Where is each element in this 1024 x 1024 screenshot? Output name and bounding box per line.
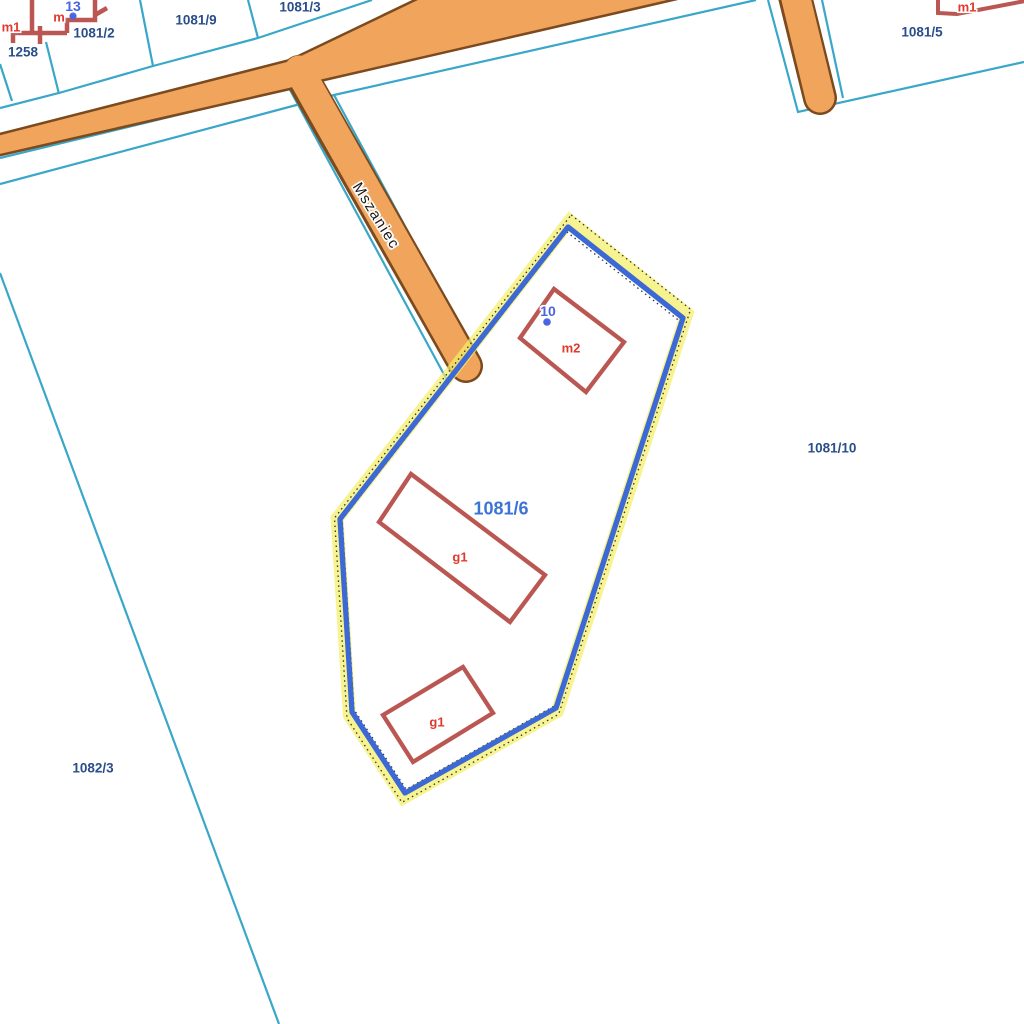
parcel-label-1258: 1258 [8,45,38,60]
parcel-label-1081-6-selected[interactable]: 1081/6 [473,499,528,520]
map-canvas[interactable]: m1 13 m 1258 1081/2 1081/9 1081/3 1081/5… [0,0,1024,1024]
building-label-m1-left: m1 [2,20,21,35]
building-m1-right-outline[interactable] [938,0,1024,14]
address-label-10: 10 [540,303,556,319]
building-label-m1-right: m1 [958,0,977,15]
building-label-m-left: m [53,10,65,25]
parcel-label-1081-2: 1081/2 [73,26,114,41]
building-label-g1-north: g1 [452,550,467,565]
address-label-13: 13 [65,0,81,14]
boundary-1258-1081-2 [46,42,59,94]
parcel-label-1081-10: 1081/10 [808,441,857,456]
parcel-label-1082-3: 1082/3 [72,761,113,776]
building-g1-north-outline[interactable] [379,474,545,622]
address-point-dot-10[interactable] [543,318,551,326]
boundary-1081-2-1081-9 [140,0,153,66]
boundary-1082-3 [0,273,279,1024]
boundary-1081-9-1081-3 [248,0,258,38]
parcel-label-1081-5: 1081/5 [901,25,942,40]
parcel-label-1081-3: 1081/3 [279,0,320,15]
boundary-west-edge [0,64,12,101]
building-label-g1-south: g1 [429,715,444,730]
building-label-m2: m2 [562,341,581,356]
parcel-label-1081-9: 1081/9 [175,13,216,28]
